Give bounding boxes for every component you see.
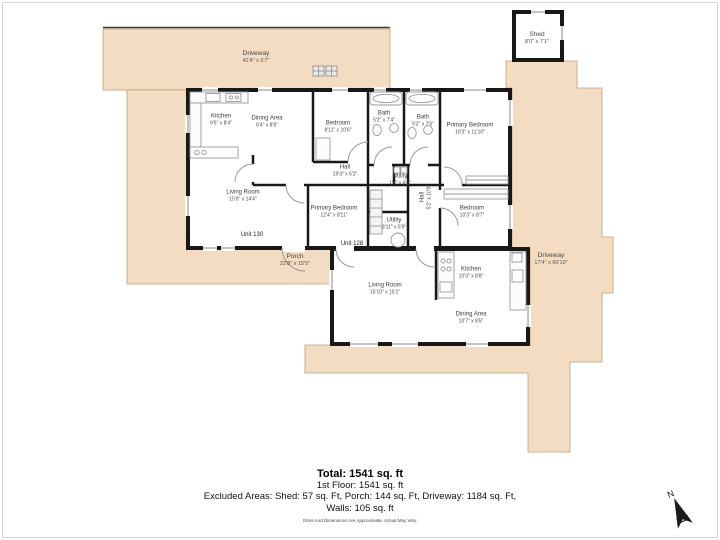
unit128-label: Unit 128 — [341, 241, 363, 247]
room-label-living1: Living Room 15'9" x 14'4" — [226, 189, 259, 202]
floorplan-drawing — [0, 0, 720, 540]
driveway-top-label: Driveway 41'4" x 9'7" — [242, 50, 269, 64]
porch-label: Porch 22'8" x 15'5" — [280, 253, 310, 267]
summary-first-floor: 1st Floor: 1541 sq. ft — [0, 480, 720, 491]
floorplan-page: Driveway 41'4" x 9'7" Shed 8'0" x 7'1" P… — [0, 0, 720, 540]
driveway-right-label: Driveway 17'4" x 60'10" — [534, 252, 567, 266]
shed-label: Shed 8'0" x 7'1" — [525, 31, 549, 45]
room-label-primary1: Primary Bedroom 10'3" x 11'10" — [447, 122, 494, 135]
room-label-kitchen2: Kitchen 10'3" x 8'8" — [459, 266, 484, 279]
room-label-bedroom2: Bedroom 10'3" x 8'7" — [460, 205, 485, 218]
summary-walls: Walls: 105 sq. ft — [0, 503, 720, 514]
room-label-primary2: Primary Bedroom 12'4" x 8'11" — [311, 205, 358, 218]
room-label-dining2: Dining Area 10'7" x 8'5" — [455, 311, 486, 324]
summary-total: Total: 1541 sq. ft — [0, 468, 720, 480]
room-label-living2: Living Room 15'10" x 15'1" — [368, 282, 401, 295]
room-label-utility2: Utility 3'11" x 5'9" — [382, 217, 406, 230]
north-label: N — [666, 488, 676, 500]
room-label-bedroom1: Bedroom 8'11" x 10'6" — [324, 120, 351, 133]
summary-excluded: Excluded Areas: Shed: 57 sq. Ft, Porch: … — [0, 491, 720, 502]
north-arrow-icon: N — [658, 482, 700, 532]
room-label-hall2: Hall 5'2" x 10'9" — [419, 185, 432, 210]
room-label-bath1: Bath 5'2" x 7'4" — [373, 110, 395, 123]
unit130-label: Unit 130 — [241, 232, 263, 238]
room-label-dining1: Dining Area 6'4" x 8'8" — [251, 115, 282, 128]
room-label-hall1: Hall 19'3" x 6'2" — [333, 164, 358, 177]
unit128-shell — [332, 249, 528, 344]
summary-disclaimer: Sizes And Dimensions Are Approximate, Ac… — [0, 518, 720, 523]
north-arrow: N — [658, 482, 700, 537]
area-summary: Total: 1541 sq. ft 1st Floor: 1541 sq. f… — [0, 468, 720, 523]
room-label-bath2: Bath 5'2" x 7'6" — [412, 114, 434, 127]
room-label-kitchen1: Kitchen 9'5" x 8'4" — [210, 113, 232, 126]
room-label-utility1: Utility 1'4" x 6'2" — [389, 173, 411, 186]
